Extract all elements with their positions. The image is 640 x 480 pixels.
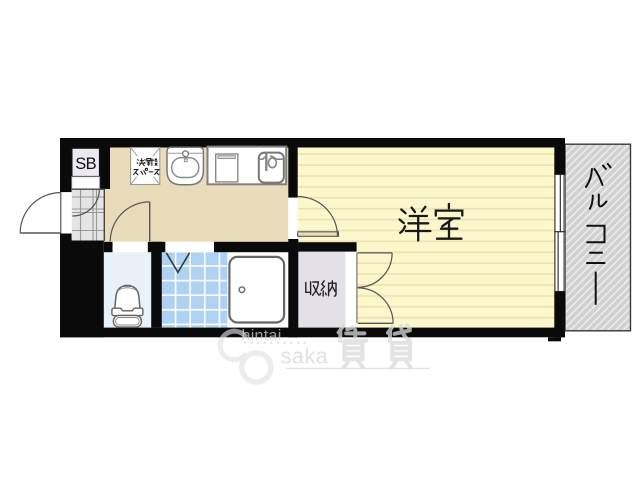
svg-text:SB: SB [75, 155, 96, 173]
svg-text:saka: saka [281, 344, 329, 369]
svg-text:hintai: hintai [242, 327, 282, 344]
